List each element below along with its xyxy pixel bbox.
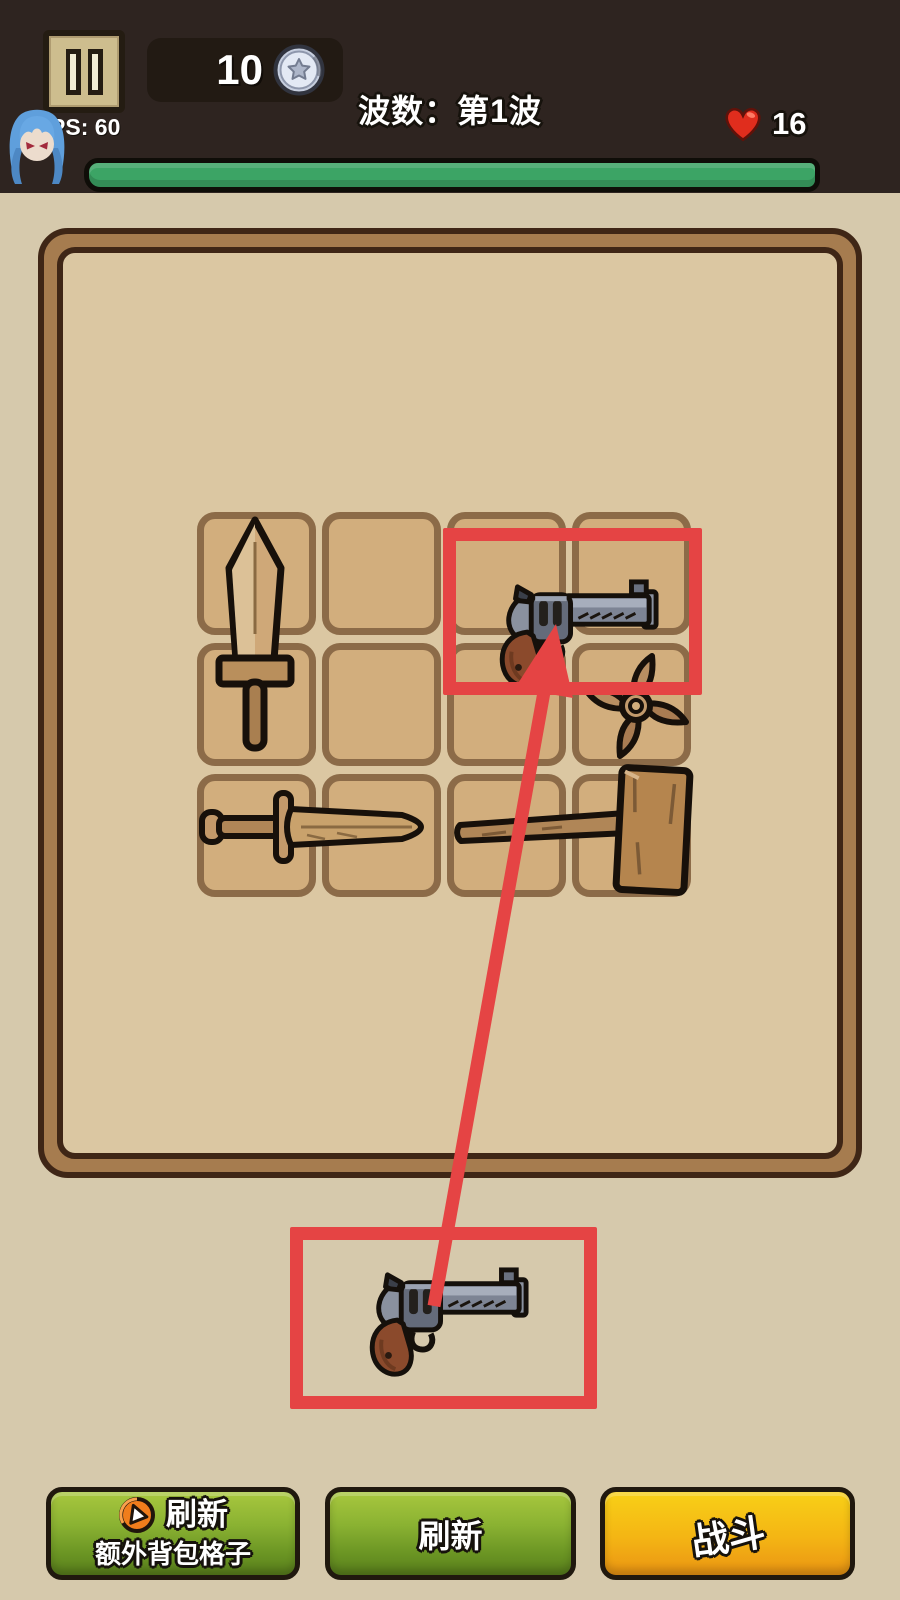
player-avatar <box>6 106 68 184</box>
wooden-sword-item[interactable] <box>204 514 306 762</box>
grid-cell[interactable] <box>322 512 441 635</box>
refresh-extra-slot-button[interactable]: 刷新 额外背包格子 <box>46 1487 300 1580</box>
top-hud-bar: 10 波数：第1波 FPS: 60 16 <box>0 0 900 193</box>
heart-icon <box>722 106 764 142</box>
battle-label: 战斗 <box>687 1502 768 1566</box>
battle-button[interactable]: 战斗 <box>600 1487 855 1580</box>
lives-count: 16 <box>772 106 806 142</box>
refresh-extra-label: 刷新 <box>166 1499 228 1532</box>
play-icon <box>118 1496 156 1534</box>
wooden-dagger-item[interactable] <box>197 780 447 875</box>
coin-count: 10 <box>216 49 263 91</box>
revolver-source-item[interactable] <box>358 1262 530 1382</box>
grid-cell[interactable] <box>322 643 441 766</box>
lives-counter: 16 <box>722 106 806 142</box>
highlight-target-slot <box>443 528 702 695</box>
refresh-extra-sublabel: 额外背包格子 <box>95 1534 251 1571</box>
health-bar <box>84 158 820 192</box>
wooden-hammer-item[interactable] <box>452 763 697 898</box>
refresh-label: 刷新 <box>418 1511 482 1557</box>
refresh-button[interactable]: 刷新 <box>325 1487 576 1580</box>
